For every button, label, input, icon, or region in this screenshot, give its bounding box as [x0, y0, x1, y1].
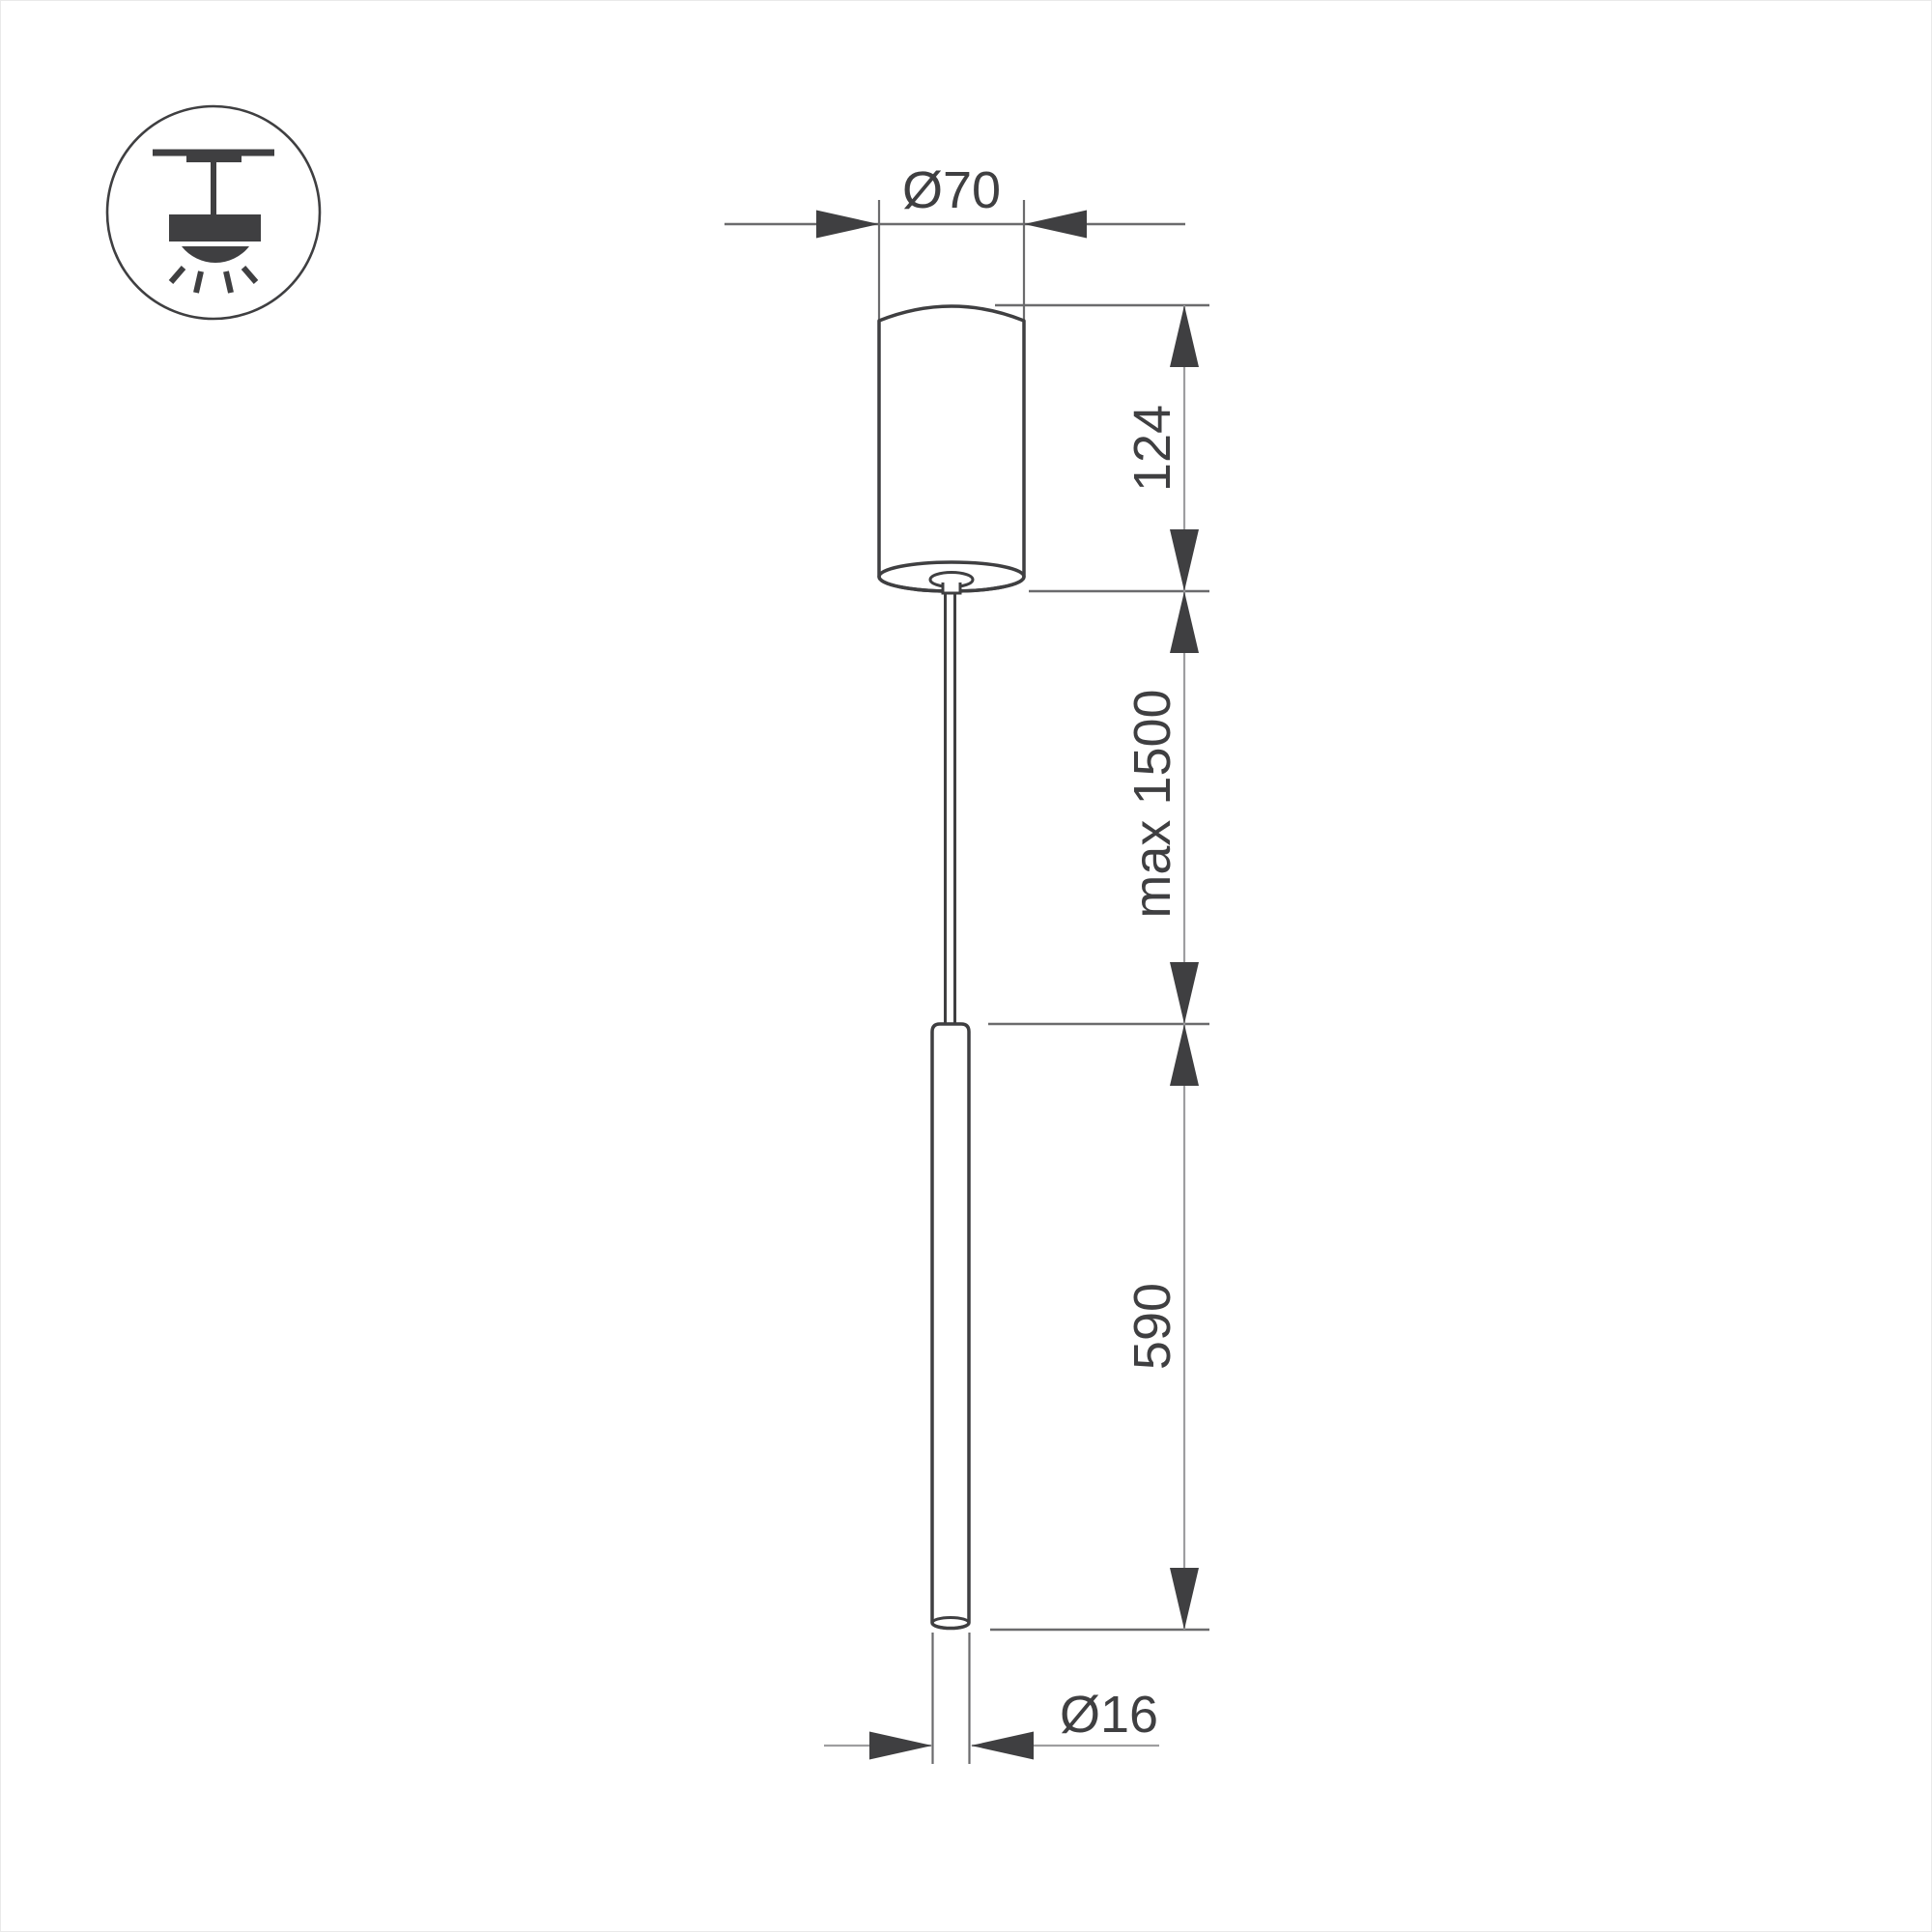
pendant-lamp-drawing	[879, 306, 1024, 1629]
light-ray	[196, 271, 201, 293]
dim-tube-diameter: Ø16	[824, 1633, 1159, 1764]
dim-label-canopy-diameter: Ø70	[902, 161, 1001, 219]
arrow-up-icon	[1170, 591, 1199, 653]
technical-drawing: Ø70 124 max 1500 590	[0, 0, 1932, 1932]
arrow-down-icon	[1170, 962, 1199, 1024]
canopy-body	[879, 306, 1024, 591]
light-tube	[932, 1024, 969, 1629]
dim-canopy-diameter: Ø70	[724, 161, 1185, 320]
light-ray	[171, 268, 184, 282]
light-ray	[243, 268, 256, 282]
cable-gland-neck	[943, 582, 960, 593]
arrow-left-icon	[971, 1732, 1034, 1760]
light-rays-icon	[171, 268, 256, 293]
drawing-page: Ø70 124 max 1500 590	[0, 0, 1932, 1932]
arrow-down-icon	[1170, 1568, 1199, 1630]
arrow-left-icon	[1024, 211, 1087, 239]
lamp-shade-dome	[182, 246, 249, 263]
arrow-down-icon	[1170, 529, 1199, 591]
arrow-up-icon	[1170, 305, 1199, 367]
lamp-body	[169, 214, 261, 241]
pendant-mount-icon	[107, 106, 320, 319]
dim-label-tube-diameter: Ø16	[1060, 1686, 1158, 1744]
dim-label-suspension-length: max 1500	[1123, 689, 1181, 918]
arrow-right-icon	[869, 1732, 932, 1760]
arrow-right-icon	[816, 211, 879, 239]
arrow-up-icon	[1170, 1024, 1199, 1086]
dim-label-tube-length: 590	[1123, 1283, 1181, 1370]
light-ray	[226, 271, 231, 293]
dim-label-canopy-height: 124	[1123, 405, 1181, 492]
